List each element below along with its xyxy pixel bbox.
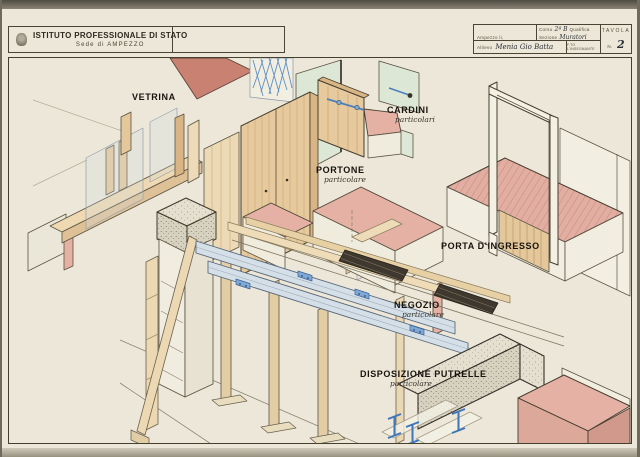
student-name-value: Menia Gio Batta [495, 43, 553, 51]
plate-number-value: 2 [617, 38, 625, 51]
scan-edge-bottom [0, 448, 640, 457]
lintel-and-shutter-drawing [170, 58, 341, 176]
axonometric-drawing-canvas [0, 0, 640, 457]
student-cell: Allievo Menia Gio Batta [474, 41, 567, 53]
institute-cell: ISTITUTO PROFESSIONALE DI STATO Sede di … [9, 27, 173, 52]
portone-door-drawing [204, 92, 318, 275]
negozio-shoring-drawing [120, 198, 564, 452]
place-label: Ampezzo li, [477, 35, 504, 40]
institute-text: ISTITUTO PROFESSIONALE DI STATO Sede di … [33, 31, 188, 48]
porta-ingresso-frame-drawing [447, 82, 630, 296]
label-porta-ingresso: PORTA D'INGRESSO [441, 242, 540, 251]
qualifica-label: Qualifica [570, 27, 590, 33]
institute-name: ISTITUTO PROFESSIONALE DI STATO [33, 31, 188, 40]
course-value: 2ª B [555, 26, 568, 34]
signature-label: F.TO L'INSEGNANTE [567, 43, 600, 51]
student-label: Allievo [477, 45, 492, 50]
institute-title-block: ISTITUTO PROFESSIONALE DI STATO Sede di … [8, 26, 285, 53]
scanned-drawing-sheet: { "sheet": { "header": { "institute": "I… [0, 0, 640, 457]
course-label: Corso [539, 27, 553, 33]
tavola-label: TAVOLA [601, 28, 631, 34]
masonry-wall-tops-drawing [243, 187, 443, 335]
scan-edge-top [0, 0, 640, 9]
cardini-hinge-detail-drawing [318, 61, 419, 158]
state-emblem-icon [16, 33, 27, 46]
date-cell: Ampezzo li, 14 - II 1957 [474, 25, 537, 41]
label-cardini: CARDINI particolari [387, 106, 435, 125]
number-label: N. [607, 44, 612, 49]
plate-number-cell: TAVOLA N. 2 [601, 25, 631, 53]
course-cell: Corso 2ª B Qualifica Sezione Muratori [537, 25, 601, 41]
drawing-frame-border [8, 57, 632, 444]
label-vetrina: VETRINA [132, 93, 176, 102]
plate-title-block: Ampezzo li, 14 - II 1957 Corso 2ª B Qual… [473, 24, 632, 54]
sezione-value: Muratori [559, 34, 586, 41]
label-negozio: NEGOZIO particolare [394, 301, 444, 320]
scan-edge-left [0, 0, 2, 457]
label-portone: PORTONE particolare [316, 166, 366, 185]
institute-location: Sede di AMPEZZO [33, 42, 188, 48]
vetrina-window-drawing [28, 100, 202, 271]
putrelle-beam-detail-drawing [382, 334, 630, 445]
label-disposizione-putrelle: DISPOSIZIONE PUTRELLE particolare [360, 370, 487, 389]
teacher-signature-cell: F.TO L'INSEGNANTE [567, 41, 601, 53]
